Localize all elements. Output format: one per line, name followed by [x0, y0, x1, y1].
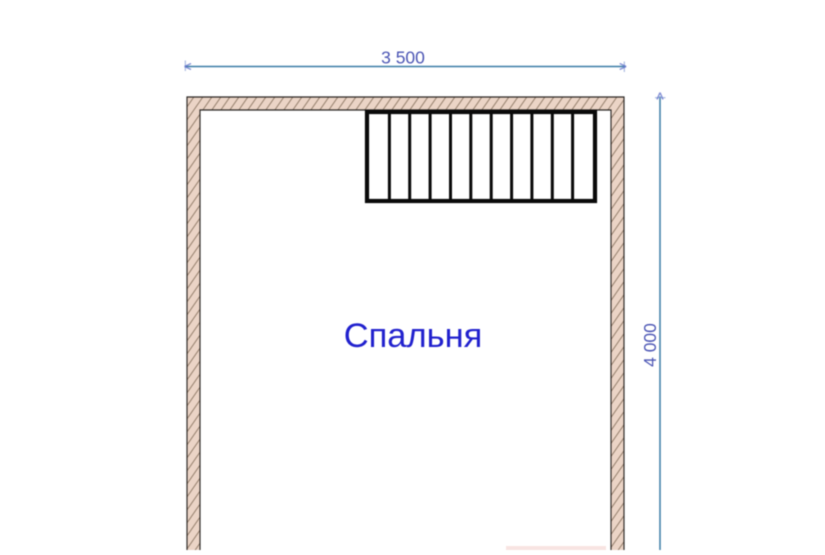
svg-text:3 500: 3 500 [381, 48, 425, 68]
svg-text:Спальня: Спальня [344, 317, 483, 355]
svg-text:4 000: 4 000 [640, 323, 660, 367]
